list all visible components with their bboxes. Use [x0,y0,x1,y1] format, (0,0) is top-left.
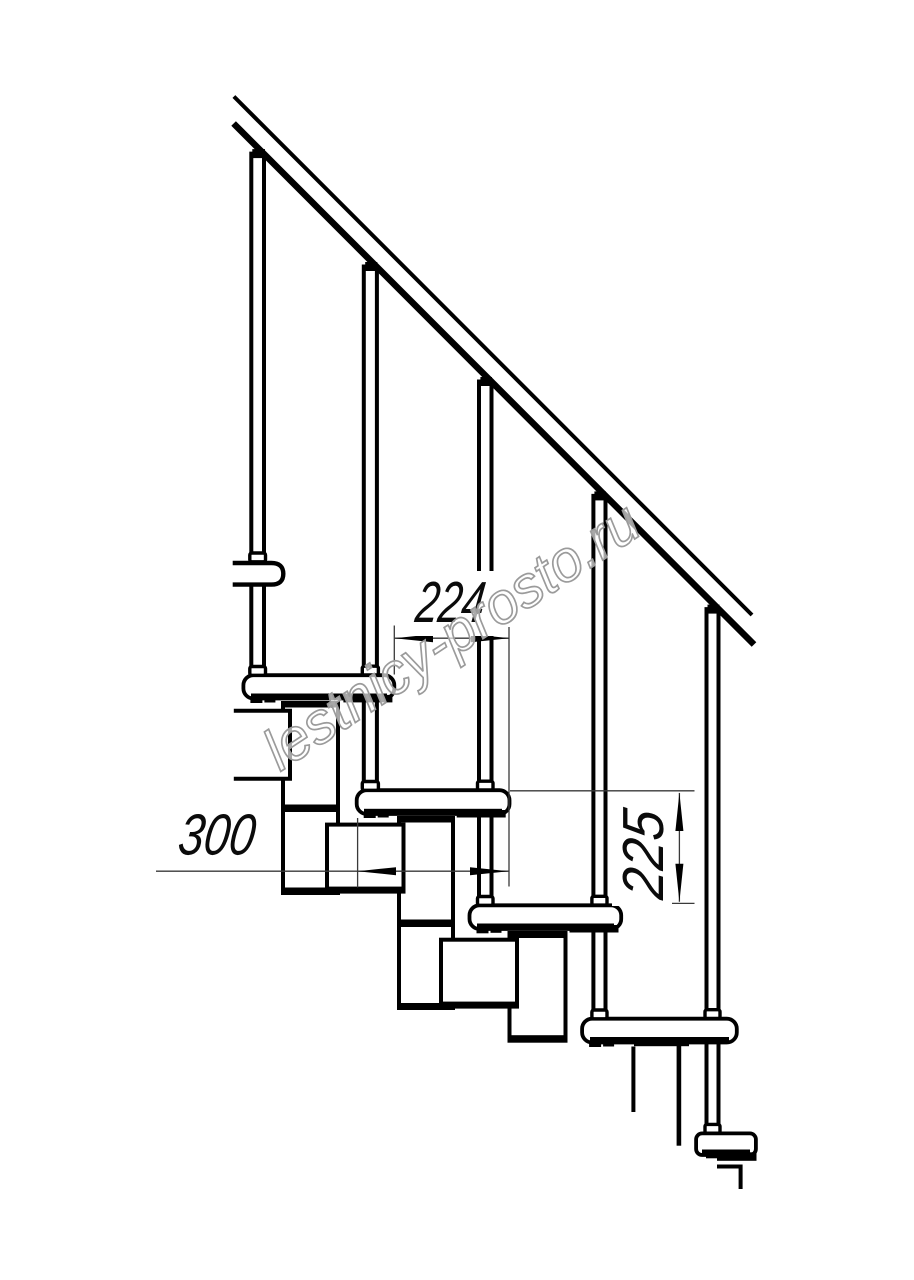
svg-text:300: 300 [175,803,260,868]
svg-text:225: 225 [611,805,676,904]
